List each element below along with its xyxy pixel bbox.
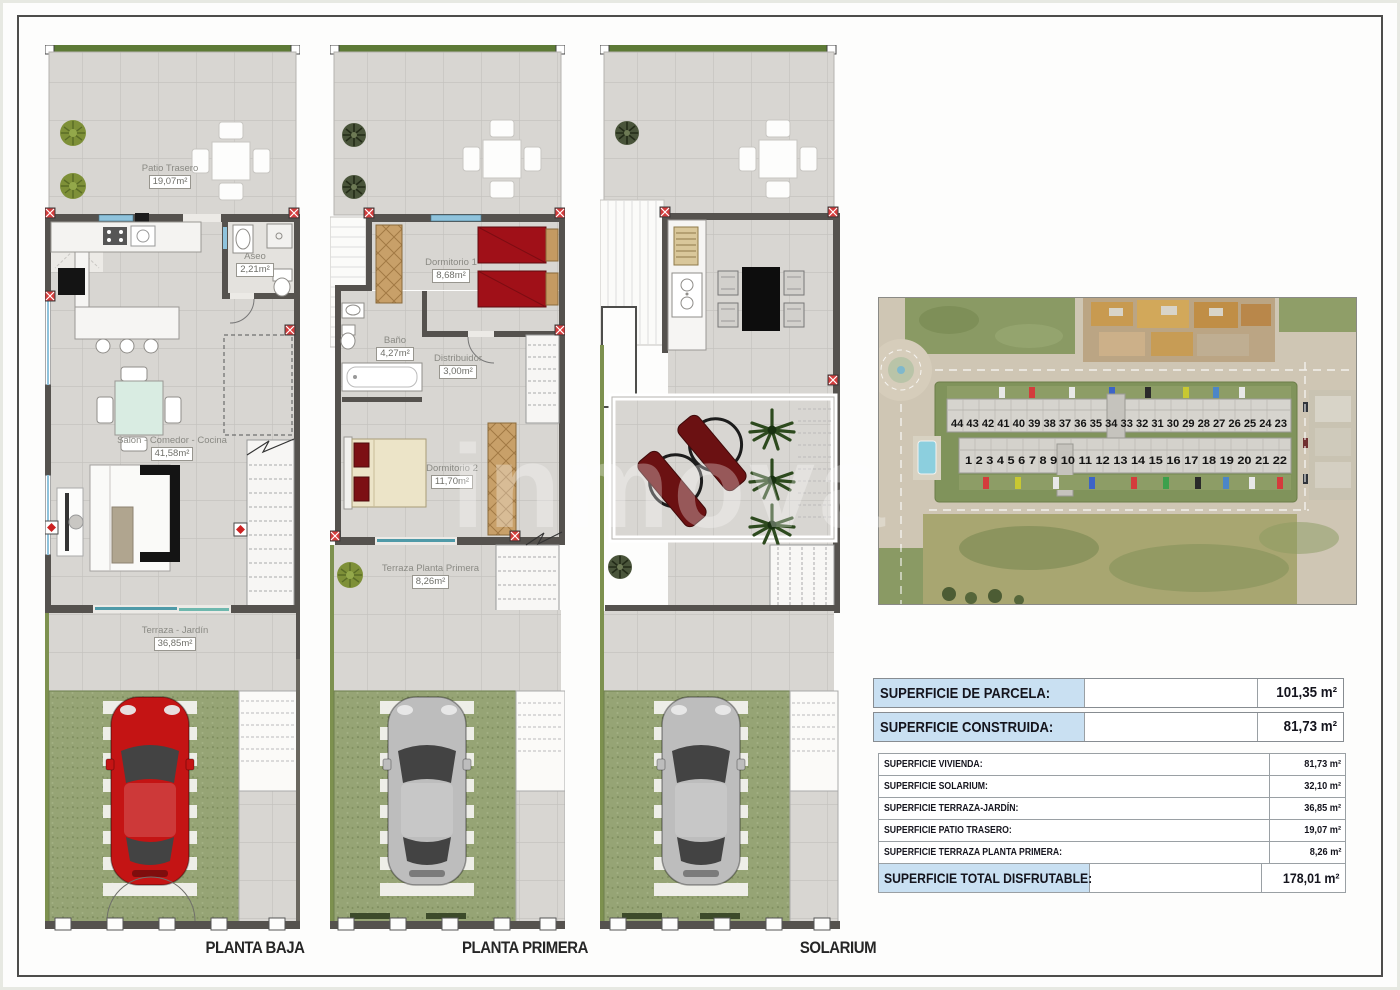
total-spacer [1089, 864, 1261, 892]
planta-primera-drawing [330, 45, 565, 935]
wall-marker-icon [828, 375, 838, 385]
summary-label: SUPERFICIE DE PARCELA: [874, 679, 1085, 707]
room-label-aseo: Aseo 2,21m² [205, 251, 305, 277]
summary-spacer [1085, 713, 1257, 741]
plant-icon [342, 175, 366, 199]
solarium-drawing [600, 45, 840, 935]
total-value: 178,01 m² [1261, 864, 1345, 892]
aerial-drawing: 44 43 42 41 40 39 38 37 36 35 34 33 32 3… [879, 298, 1356, 604]
wall-marker-icon [828, 207, 838, 217]
row-value: 81,73 m² [1269, 754, 1345, 775]
total-label: SUPERFICIE TOTAL DISFRUTABLE: [879, 864, 1089, 892]
wall-marker-icon [510, 531, 520, 541]
floorplan-solarium [600, 45, 840, 935]
development-plot: 44 43 42 41 40 39 38 37 36 35 34 33 32 3… [913, 382, 1297, 502]
plant-icon [342, 123, 366, 147]
fridge [58, 268, 85, 295]
summary-value: 101,35 m² [1257, 679, 1343, 707]
table-row: SUPERFICIE SOLARIUM: 32,10 m² [879, 776, 1345, 798]
row-label: SUPERFICIE TERRAZA-JARDÍN: [879, 798, 1269, 819]
wall-marker-icon [45, 521, 58, 534]
wall-marker-icon [234, 523, 247, 536]
wall-marker-icon [555, 208, 565, 218]
street-east [1303, 390, 1356, 500]
plant-icon [60, 120, 86, 146]
caption-planta-baja: PLANTA BAJA [171, 938, 338, 958]
table-row: SUPERFICIE TERRAZA-JARDÍN: 36,85 m² [879, 798, 1345, 820]
wall-marker-icon [330, 531, 340, 541]
back-row-unit-numbers: 44 43 42 41 40 39 38 37 36 35 34 33 32 3… [951, 418, 1287, 430]
stool [144, 339, 158, 353]
stove [103, 227, 127, 245]
stool [120, 339, 134, 353]
summary-value: 81,73 m² [1257, 713, 1343, 741]
table-row: SUPERFICIE PATIO TRASERO: 19,07 m² [879, 820, 1345, 842]
row-label: SUPERFICIE VIVIENDA: [879, 754, 1269, 775]
wall-marker-icon [45, 291, 55, 301]
summary-detail-table: SUPERFICIE VIVIENDA: 81,73 m² SUPERFICIE… [878, 753, 1346, 893]
room-label-patio-trasero: Patio Trasero 19,07m² [105, 163, 235, 189]
gray-car [657, 697, 745, 885]
table-row: SUPERFICIE TERRAZA PLANTA PRIMERA: 8,26 … [879, 842, 1345, 864]
field [923, 514, 1339, 604]
window [45, 300, 51, 385]
garden-edge [47, 45, 298, 52]
plant-icon [60, 173, 86, 199]
neighbor-buildings [1083, 298, 1275, 362]
room-label-salon: Salón - Comedor - Cocina 41,58m² [97, 435, 247, 461]
summary-label: SUPERFICIE CONSTRUIDA: [874, 713, 1085, 741]
wall-marker-icon [45, 208, 55, 218]
wall-marker-icon [289, 208, 299, 218]
red-car [106, 697, 194, 885]
stairs-down [770, 545, 834, 611]
wall-marker-icon [364, 208, 374, 218]
row-value: 32,10 m² [1269, 776, 1345, 797]
summary-spacer [1085, 679, 1257, 707]
summary-row-construida: SUPERFICIE CONSTRUIDA: 81,73 m² [873, 712, 1344, 742]
tv-unit [57, 488, 83, 556]
row-label: SUPERFICIE TERRAZA PLANTA PRIMERA: [879, 842, 1269, 863]
stool [96, 339, 110, 353]
surface-summary: SUPERFICIE DE PARCELA: 101,35 m² SUPERFI… [873, 678, 1345, 896]
plant-icon [615, 121, 639, 145]
caption-planta-primera: PLANTA PRIMERA [441, 938, 608, 958]
row-value: 8,26 m² [1269, 842, 1345, 863]
front-row-unit-numbers: 1 2 3 4 5 6 7 8 9 10 11 12 13 14 15 16 1… [965, 455, 1287, 467]
outdoor-kitchen [668, 220, 706, 350]
table-row: SUPERFICIE VIVIENDA: 81,73 m² [879, 754, 1345, 776]
wall-marker-icon [555, 325, 565, 335]
floorplan-planta-baja: Patio Trasero 19,07m² Aseo 2,21m² Salón … [45, 45, 300, 935]
floorplan-planta-primera: Dormitorio 1 8,68m² Baño 4,27m² Distribu… [330, 45, 565, 935]
aerial-photo: 44 43 42 41 40 39 38 37 36 35 34 33 32 3… [878, 297, 1357, 605]
room-label-terraza-planta-primera: Terraza Planta Primera 8,26m² [358, 563, 503, 589]
wall-marker-icon [285, 325, 295, 335]
room-label-distribuidor: Distribuidor 3,00m² [398, 353, 518, 379]
row-value: 19,07 m² [1269, 820, 1345, 841]
plant-icon [608, 555, 632, 579]
wall-marker-icon [660, 207, 670, 217]
plan-sheet: Patio Trasero 19,07m² Aseo 2,21m² Salón … [0, 0, 1400, 990]
stairs [526, 335, 559, 423]
row-label: SUPERFICIE SOLARIUM: [879, 776, 1269, 797]
row-label: SUPERFICIE PATIO TRASERO: [879, 820, 1269, 841]
caption-solarium: SOLARIUM [754, 938, 921, 958]
room-label-dormitorio-2: Dormitorio 2 11,70m² [392, 463, 512, 489]
row-value: 36,85 m² [1269, 798, 1345, 819]
room-label-terraza-jardin: Terraza - Jardín 36,85m² [120, 625, 230, 651]
window [45, 475, 51, 555]
room-label-dormitorio-1: Dormitorio 1 8,68m² [391, 257, 511, 283]
summary-total-row: SUPERFICIE TOTAL DISFRUTABLE: 178,01 m² [879, 864, 1345, 892]
summary-row-parcela: SUPERFICIE DE PARCELA: 101,35 m² [873, 678, 1344, 708]
gray-car [383, 697, 471, 885]
stairs [247, 439, 294, 610]
